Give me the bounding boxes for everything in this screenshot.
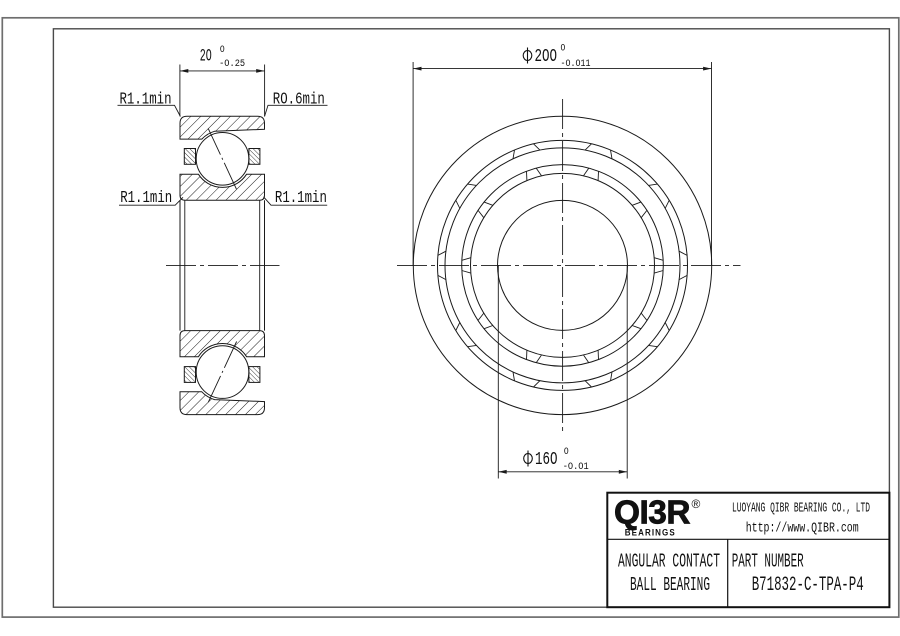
svg-text:BEARINGS: BEARINGS <box>625 527 676 537</box>
svg-text:-O.25: -O.25 <box>219 58 245 70</box>
svg-text:-O.O1: -O.O1 <box>563 461 589 473</box>
svg-text:2O: 2O <box>200 46 212 66</box>
svg-text:R1.1min: R1.1min <box>275 188 327 207</box>
svg-text:O: O <box>220 44 225 56</box>
svg-text:-O.O11: -O.O11 <box>561 58 591 70</box>
svg-text:O: O <box>561 43 566 55</box>
svg-text:B71832-C-TPA-P4: B71832-C-TPA-P4 <box>752 574 864 597</box>
svg-text:16O: 16O <box>535 450 558 470</box>
svg-text:PART NUMBER: PART NUMBER <box>732 551 804 573</box>
svg-text:http://www.QIBR.com: http://www.QIBR.com <box>746 522 859 537</box>
svg-text:BALL BEARING: BALL BEARING <box>630 574 710 596</box>
svg-text:O: O <box>564 446 569 458</box>
svg-text:QI3R: QI3R <box>614 494 691 531</box>
svg-text:LUOYANG QIBR BEARING CO., LTD: LUOYANG QIBR BEARING CO., LTD <box>732 502 870 517</box>
svg-text:2OO: 2OO <box>535 47 558 67</box>
svg-text:ANGULAR CONTACT: ANGULAR CONTACT <box>618 551 720 573</box>
svg-text:R1.1min: R1.1min <box>120 188 172 207</box>
svg-text:®: ® <box>692 497 701 511</box>
